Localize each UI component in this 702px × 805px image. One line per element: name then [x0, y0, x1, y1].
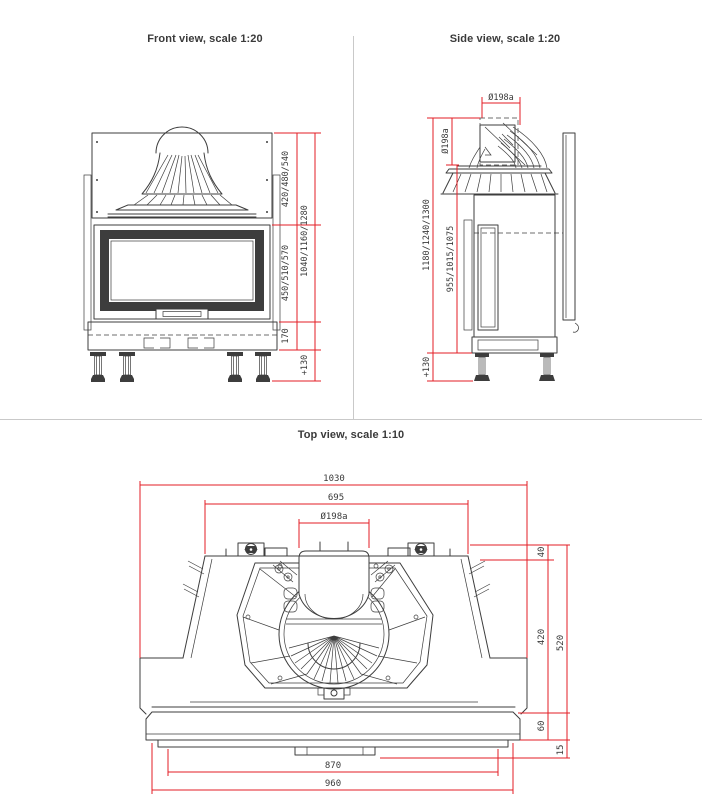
top-dimensions: 1030 695 Ø198a 40 420 520 60 15 870 960	[140, 474, 570, 794]
dim-front-hood-height: 420/480/540	[281, 151, 291, 207]
dim-top-total-depth: 520	[556, 635, 566, 651]
dim-side-total-height: 1180/1240/1300	[422, 199, 432, 271]
top-mount-bracket-right	[408, 543, 434, 556]
top-body-outline	[140, 542, 527, 755]
dim-side-flue-diameter-top: Ø198a	[488, 92, 514, 103]
side-fireplace-outline	[441, 118, 579, 381]
dim-side-legs-height: +130	[422, 357, 432, 377]
dim-front-total-height: 1040/1160/1280	[300, 205, 310, 277]
dim-front-door-height: 450/510/570	[281, 245, 291, 301]
dim-top-front-inner-width: 870	[325, 761, 341, 771]
dim-top-overall-width: 1030	[323, 474, 345, 484]
technical-drawing-page: Front view, scale 1:20 Side view, scale …	[0, 0, 702, 805]
front-dimensions: 420/480/540 450/510/570 170 1040/1160/12…	[272, 133, 321, 381]
front-door	[94, 225, 270, 319]
top-front-bar	[146, 712, 520, 740]
side-dimensions: Ø198a Ø198a 1180/1240/1300 955/1015/1075…	[422, 92, 520, 381]
dim-top-back-depth: 40	[537, 547, 547, 558]
dim-top-top-width: 695	[328, 493, 344, 503]
side-body	[474, 195, 555, 337]
side-view-drawing: Ø198a Ø198a 1180/1240/1300 955/1015/1075…	[395, 85, 610, 400]
top-flue-collar	[299, 551, 369, 619]
dim-top-front-width: 960	[325, 779, 341, 789]
side-heat-shield	[563, 133, 579, 332]
dim-top-flue-diameter: Ø198a	[320, 511, 347, 522]
front-chimney-cap	[108, 127, 256, 217]
front-base	[88, 322, 277, 350]
dim-front-legs-height: +130	[300, 355, 310, 375]
top-view-title: Top view, scale 1:10	[226, 429, 476, 441]
dim-top-body-depth: 420	[537, 629, 547, 645]
top-view-drawing: 1030 695 Ø198a 40 420 520 60 15 870 960	[130, 462, 585, 805]
top-mount-bracket-left	[238, 543, 264, 556]
dim-side-body-height: 955/1015/1075	[446, 226, 456, 293]
dim-side-flue-diameter-side: Ø198a	[440, 128, 451, 154]
side-view-title: Side view, scale 1:20	[390, 33, 620, 45]
dim-front-base-height: 170	[281, 328, 291, 343]
dim-top-lip-depth: 15	[556, 745, 566, 756]
vertical-divider	[353, 36, 354, 419]
side-legs	[474, 353, 555, 381]
dim-top-front-depth: 60	[537, 721, 547, 732]
front-fireplace-outline	[84, 127, 280, 382]
front-legs	[90, 352, 271, 382]
front-view-drawing: 420/480/540 450/510/570 170 1040/1160/12…	[80, 108, 330, 398]
horizontal-divider	[0, 419, 702, 420]
front-view-title: Front view, scale 1:20	[80, 33, 330, 45]
